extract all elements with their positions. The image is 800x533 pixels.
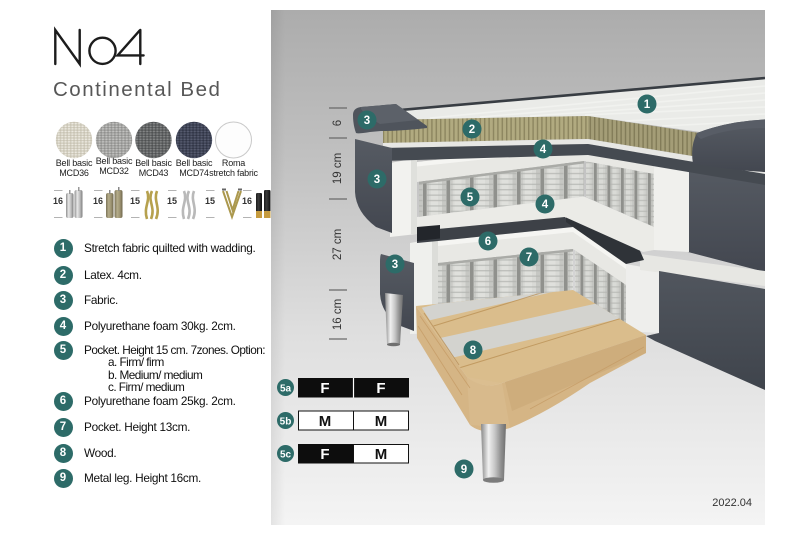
svg-text:6: 6 [332, 120, 344, 126]
svg-text:8: 8 [470, 345, 477, 357]
svg-text:7: 7 [526, 252, 532, 264]
svg-text:3: 3 [364, 115, 370, 127]
svg-text:5b: 5b [280, 417, 292, 428]
svg-text:M: M [375, 413, 388, 430]
svg-text:1: 1 [644, 99, 651, 111]
svg-text:5c: 5c [280, 450, 292, 461]
svg-text:M: M [375, 446, 388, 463]
svg-text:5a: 5a [280, 384, 292, 395]
svg-text:F: F [376, 380, 385, 397]
svg-text:16 cm: 16 cm [332, 299, 344, 330]
svg-text:6: 6 [485, 236, 491, 248]
svg-text:3: 3 [374, 174, 380, 186]
svg-text:2: 2 [469, 124, 475, 136]
svg-text:27 cm: 27 cm [332, 229, 344, 260]
svg-text:3: 3 [392, 259, 398, 271]
svg-text:9: 9 [461, 464, 467, 476]
svg-text:F: F [320, 380, 329, 397]
svg-text:2022.04: 2022.04 [712, 497, 752, 509]
svg-text:19 cm: 19 cm [332, 153, 344, 184]
svg-text:F: F [320, 446, 329, 463]
svg-text:5: 5 [467, 192, 474, 204]
svg-text:4: 4 [540, 144, 547, 156]
svg-text:M: M [319, 413, 332, 430]
svg-text:4: 4 [542, 199, 549, 211]
